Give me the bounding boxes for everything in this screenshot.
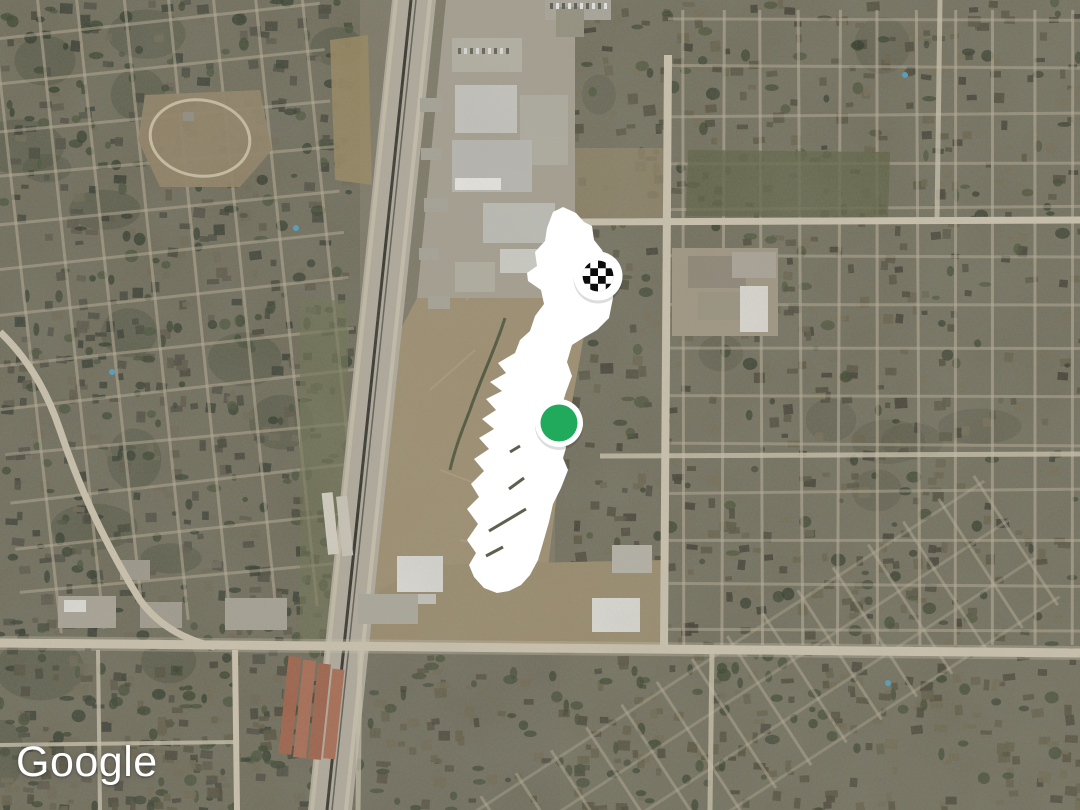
google-logo-text: Google — [16, 738, 158, 786]
google-logo[interactable]: Google — [16, 738, 158, 787]
checkered-flag-icon — [583, 261, 614, 292]
start-marker[interactable] — [535, 399, 583, 450]
start-dot — [541, 405, 578, 442]
map[interactable]: Google — [0, 0, 1080, 810]
satellite-imagery-layer — [0, 0, 1080, 810]
